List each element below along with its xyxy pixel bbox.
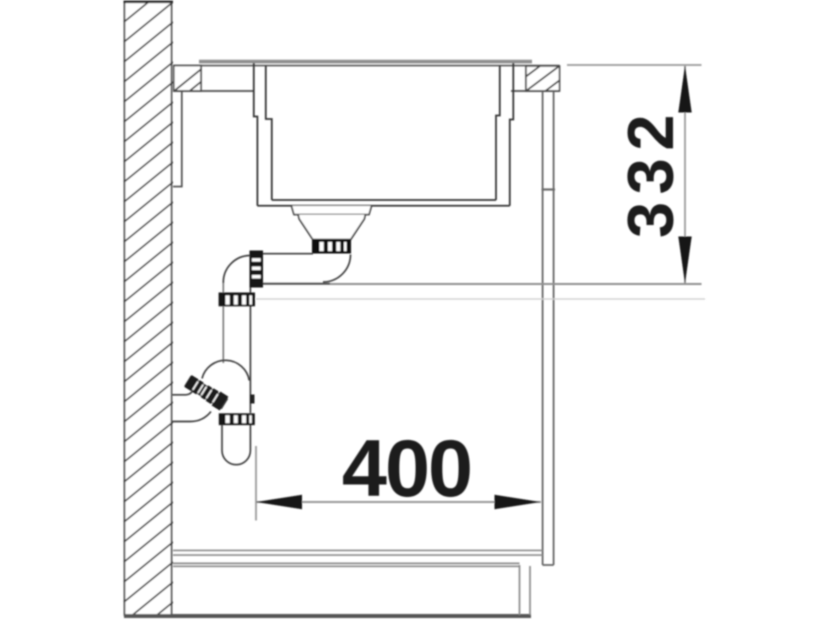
svg-text:400: 400 [342,424,471,514]
svg-text:332: 332 [614,107,687,238]
